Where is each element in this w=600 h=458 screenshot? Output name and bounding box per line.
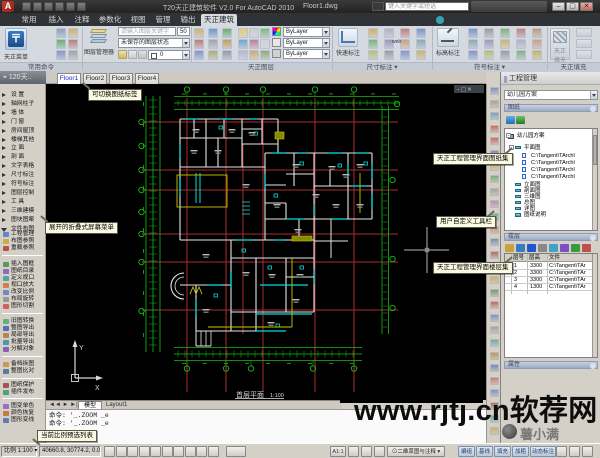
svg-text:首层平面: 首层平面 bbox=[236, 390, 264, 399]
svg-text:1:100: 1:100 bbox=[270, 393, 284, 399]
svg-text:Y: Y bbox=[79, 345, 84, 352]
svg-text:- □ ×: - □ × bbox=[457, 87, 472, 94]
svg-text:X: X bbox=[95, 385, 100, 392]
